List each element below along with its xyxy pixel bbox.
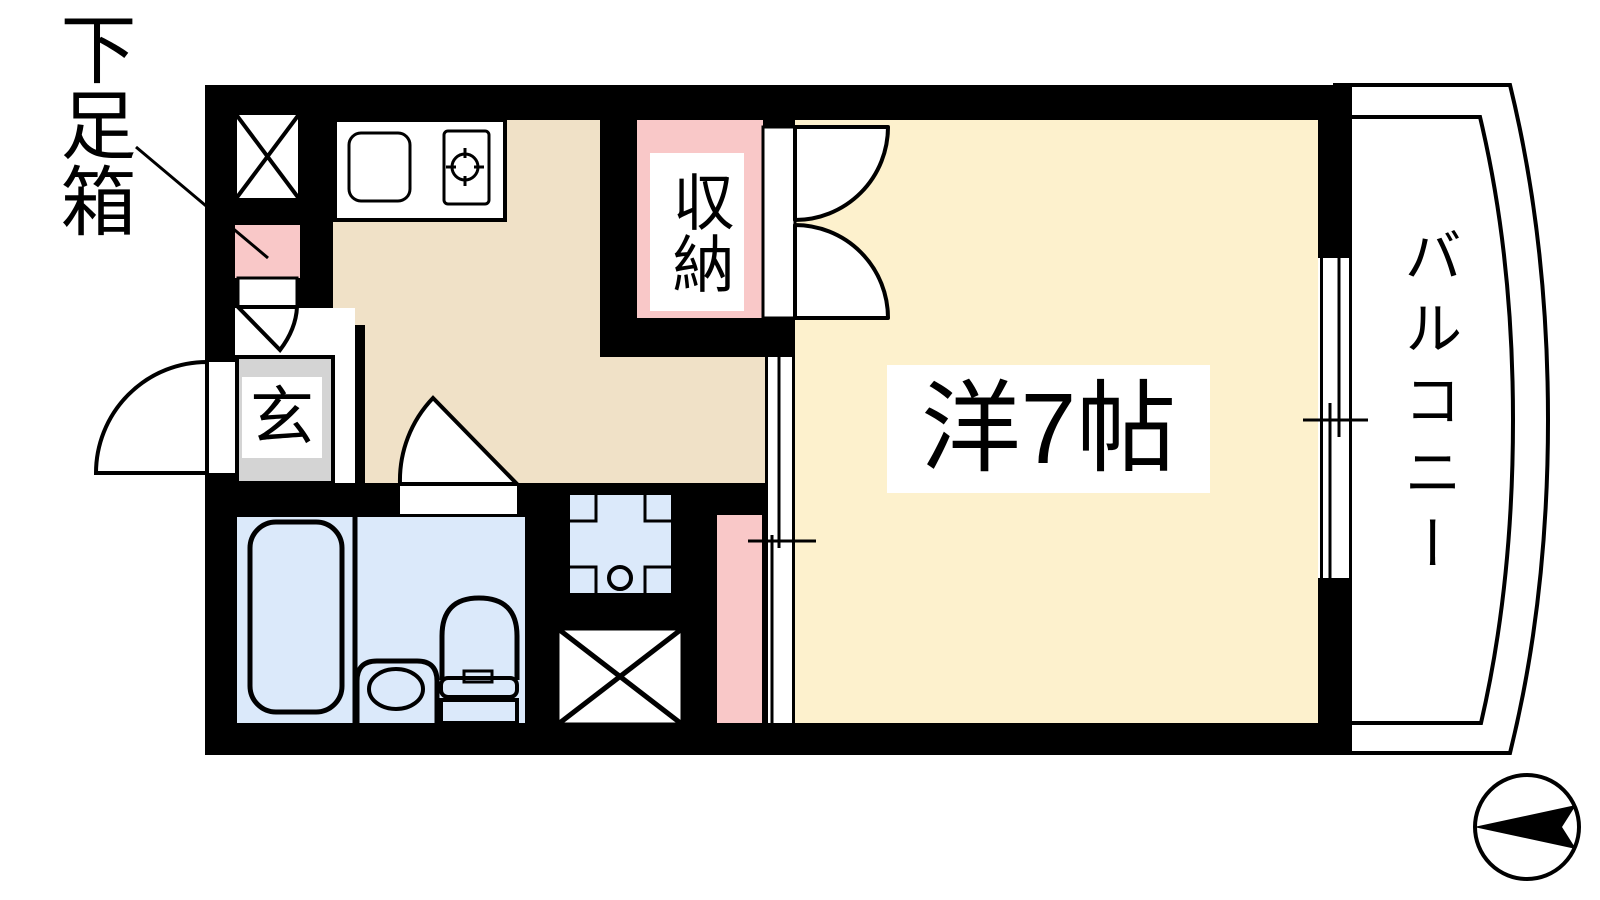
label-room: 洋7帖 (887, 365, 1210, 493)
shoe-cabinet (235, 225, 300, 278)
bath-door-opening (400, 484, 517, 514)
kitchen-counter (335, 120, 505, 220)
entrance-wall (355, 325, 365, 483)
label-closet: 収納 (650, 153, 744, 311)
floorplan-canvas: 下足箱 収納 洋7帖 玄 バルコニー (0, 0, 1600, 900)
label-entrance: 玄 (242, 377, 322, 458)
closet-door-panel (763, 127, 795, 318)
accent-partition (717, 515, 762, 723)
front-door-swing-icon (96, 362, 207, 473)
pipe-space-x-icon-2 (557, 628, 683, 725)
label-balcony: バルコニー (1398, 226, 1457, 586)
front-door-opening (205, 362, 235, 473)
north-arrow-icon (1474, 775, 1579, 879)
label-shoe-box: 下足箱 (52, 10, 130, 238)
floorplan-drawing (0, 0, 1600, 900)
washing-machine-pan-icon (568, 493, 673, 595)
bathroom-floor (237, 517, 525, 723)
sink-icon (349, 133, 410, 201)
shoe-cabinet-door (238, 278, 297, 307)
stove-burner-icon (444, 131, 489, 204)
pipe-space-x-icon (235, 113, 300, 200)
